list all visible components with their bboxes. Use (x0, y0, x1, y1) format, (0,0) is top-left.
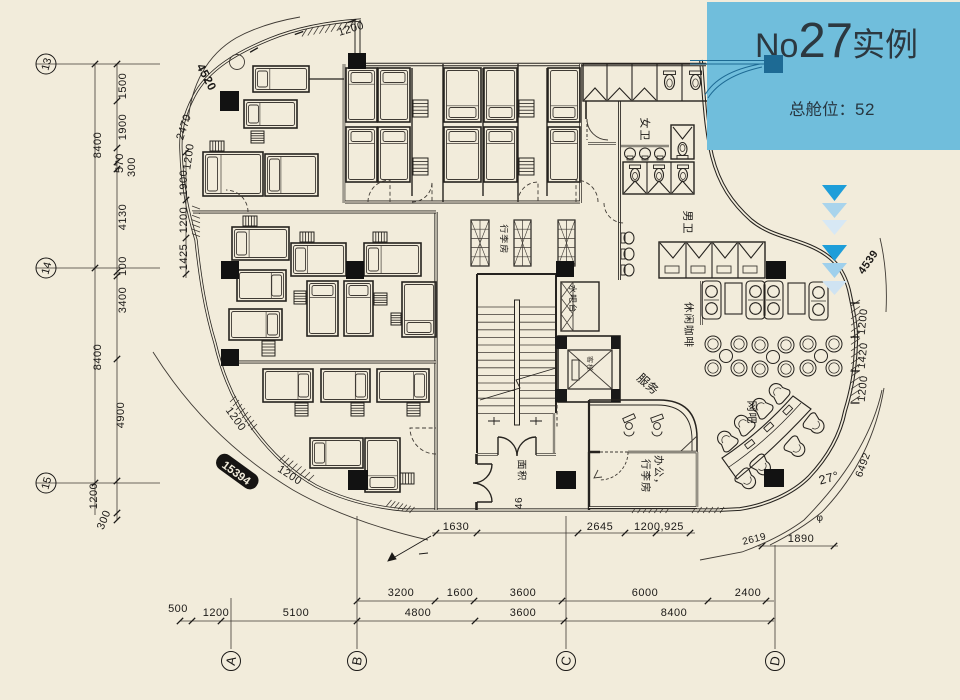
svg-text:500: 500 (168, 603, 188, 615)
svg-text:1200: 1200 (178, 207, 190, 233)
svg-text:4900: 4900 (115, 402, 127, 428)
svg-text:300: 300 (126, 157, 138, 177)
svg-text:φ: φ (817, 513, 824, 524)
svg-text:8400: 8400 (92, 344, 104, 370)
svg-text:52: 52 (855, 100, 875, 119)
svg-text:6000: 6000 (632, 587, 658, 599)
svg-text:1200: 1200 (203, 607, 229, 619)
svg-text:100: 100 (117, 256, 129, 276)
svg-text:3600: 3600 (510, 607, 536, 619)
svg-text:1900: 1900 (117, 114, 129, 140)
svg-text:46: 46 (514, 497, 525, 509)
svg-text:1600: 1600 (447, 587, 473, 599)
svg-text:1200,925: 1200,925 (634, 521, 684, 533)
svg-text:3400: 3400 (117, 287, 129, 313)
svg-text:4130: 4130 (117, 204, 129, 230)
svg-text:570: 570 (114, 153, 126, 173)
svg-text:1425: 1425 (178, 244, 190, 270)
svg-text:1900: 1900 (178, 170, 190, 196)
svg-text:3200: 3200 (388, 587, 414, 599)
svg-text:4800: 4800 (405, 607, 431, 619)
svg-text:2645: 2645 (587, 521, 613, 533)
svg-text:1500: 1500 (117, 73, 129, 99)
svg-text:1890: 1890 (788, 533, 814, 545)
svg-text:8400: 8400 (92, 132, 104, 158)
svg-text:1200: 1200 (88, 483, 100, 509)
svg-text:5100: 5100 (283, 607, 309, 619)
svg-text:1630: 1630 (443, 521, 469, 533)
svg-text:3600: 3600 (510, 587, 536, 599)
svg-text:2400: 2400 (735, 587, 761, 599)
svg-text:8400: 8400 (661, 607, 687, 619)
